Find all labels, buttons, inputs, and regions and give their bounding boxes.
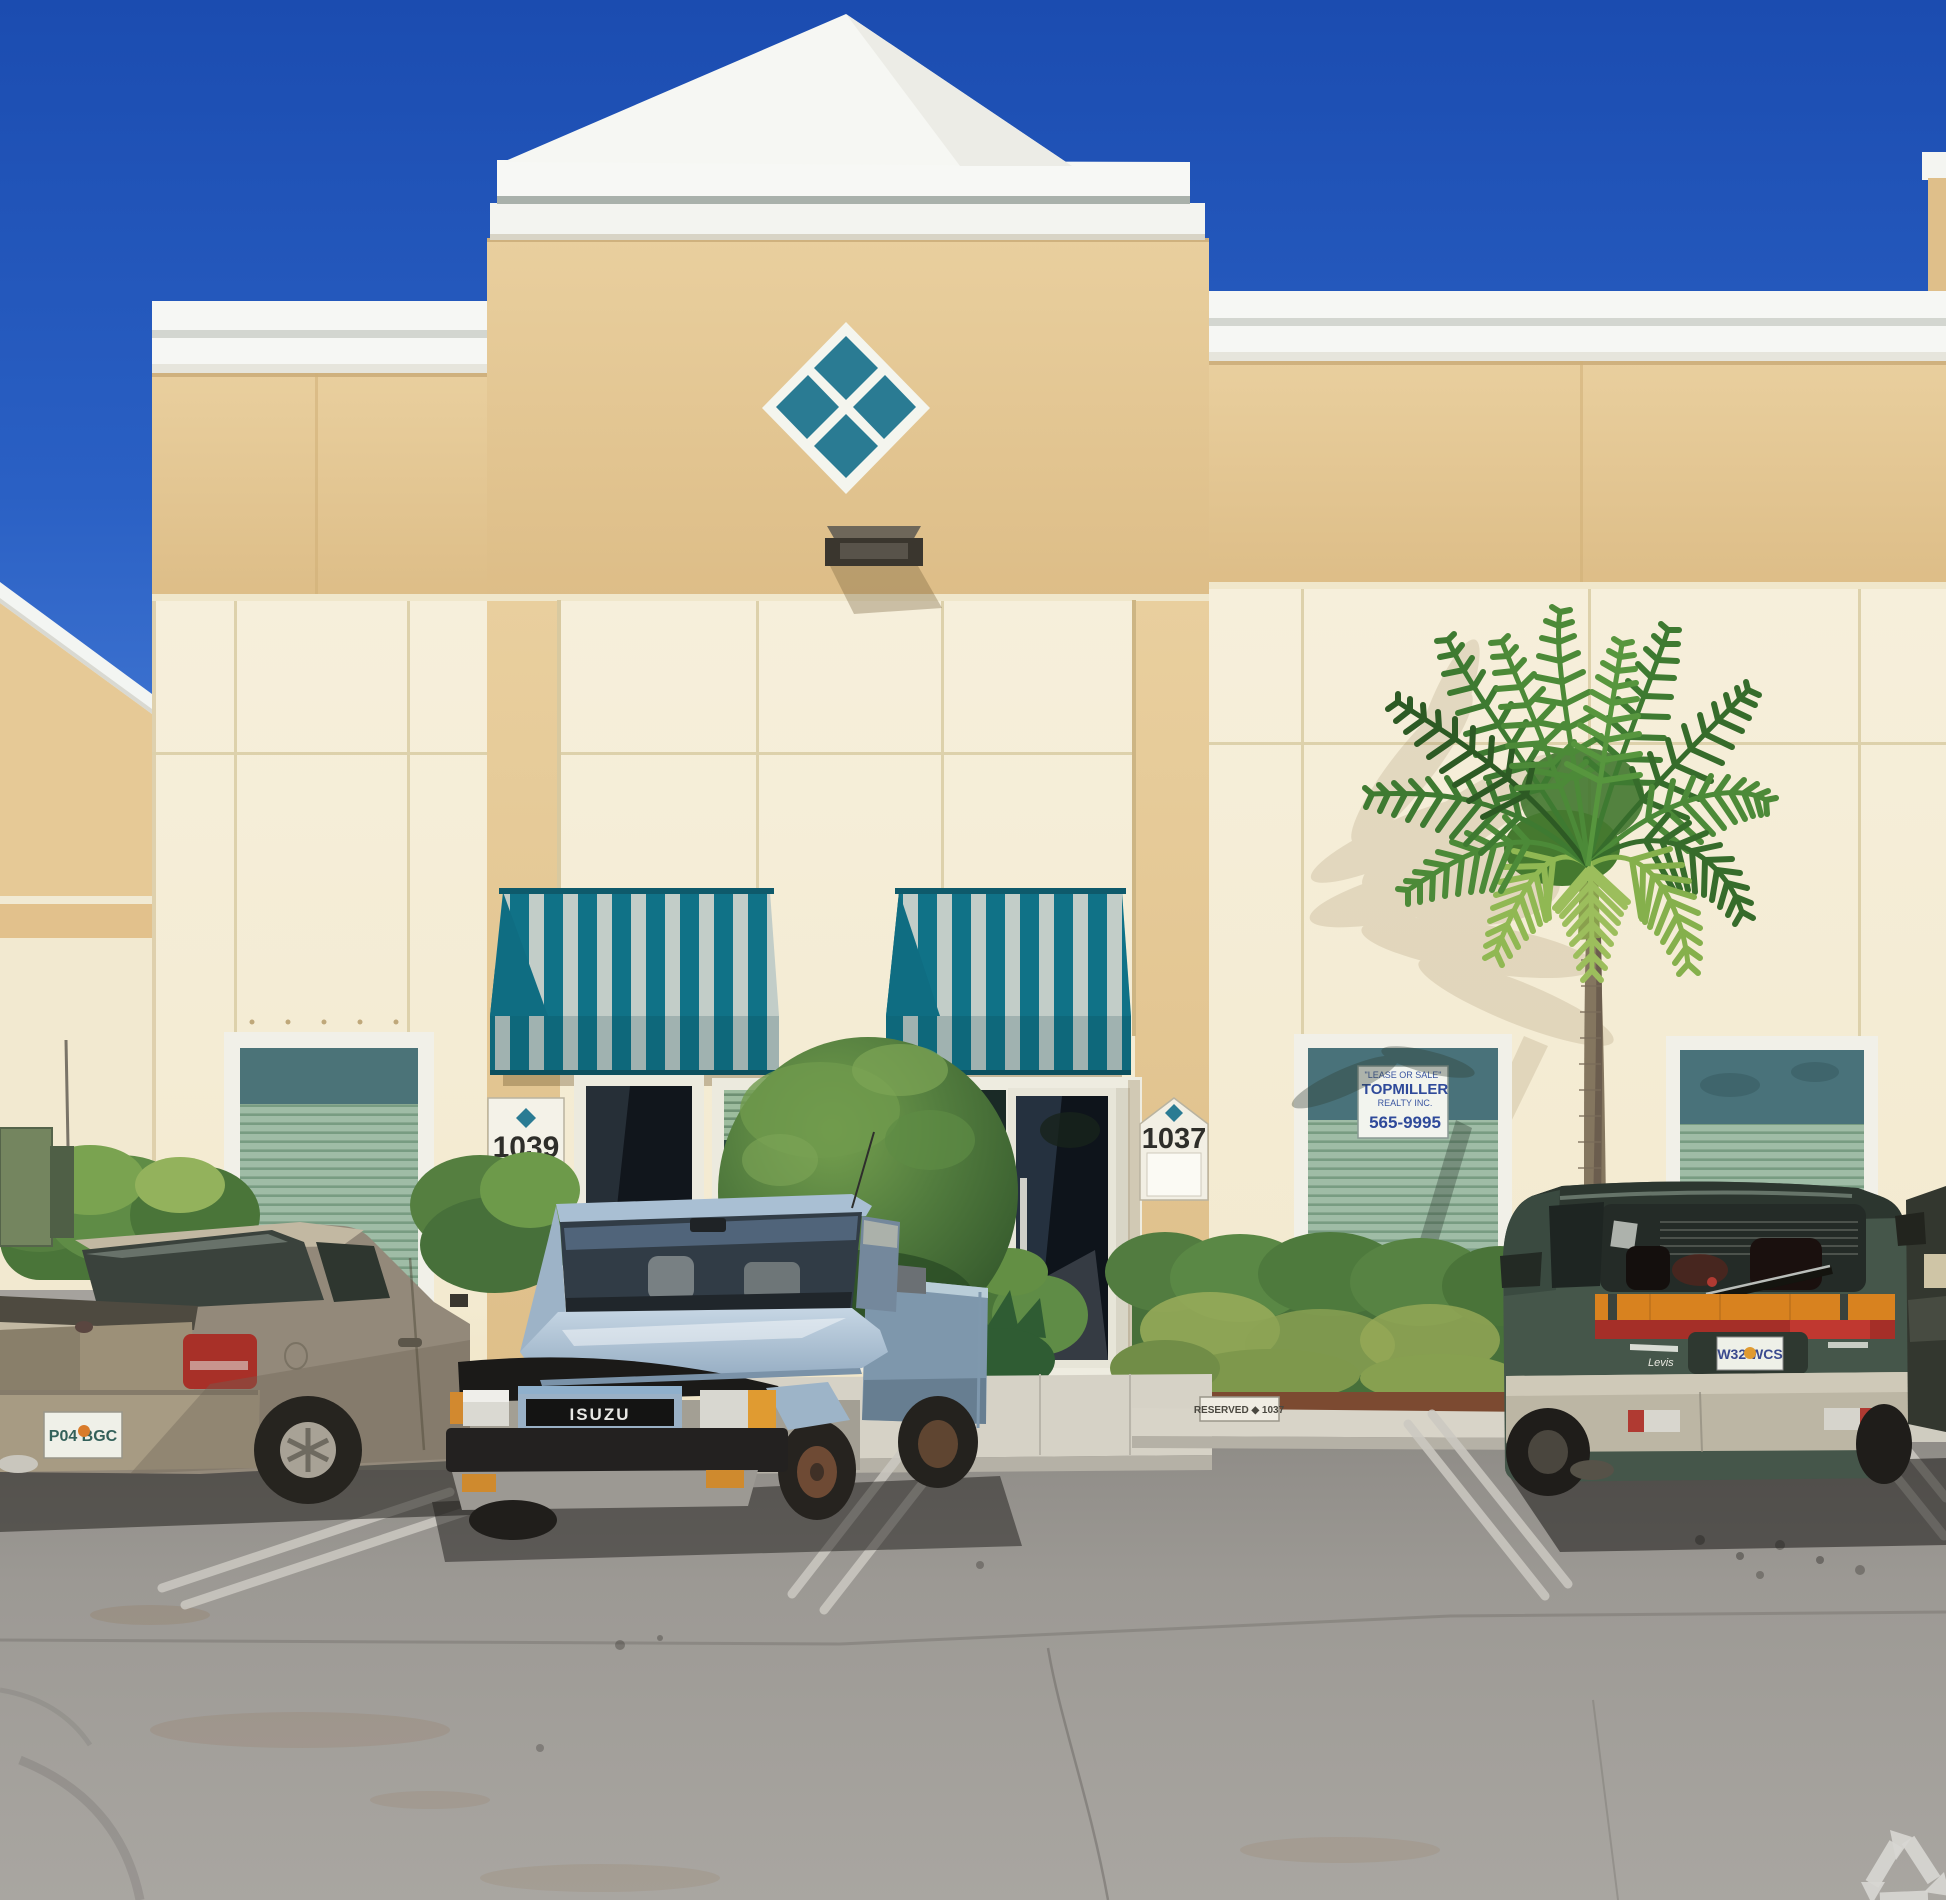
- svg-text:1037: 1037: [1142, 1123, 1207, 1155]
- svg-text:TOPMILLER: TOPMILLER: [1362, 1081, 1449, 1098]
- svg-text:REALTY INC.: REALTY INC.: [1378, 1098, 1433, 1108]
- svg-text:ISUZU: ISUZU: [570, 1405, 631, 1424]
- svg-text:565-9995: 565-9995: [1369, 1113, 1441, 1132]
- svg-text:RESERVED ◆ 1037: RESERVED ◆ 1037: [1194, 1405, 1285, 1416]
- svg-text:Levis: Levis: [1648, 1357, 1674, 1369]
